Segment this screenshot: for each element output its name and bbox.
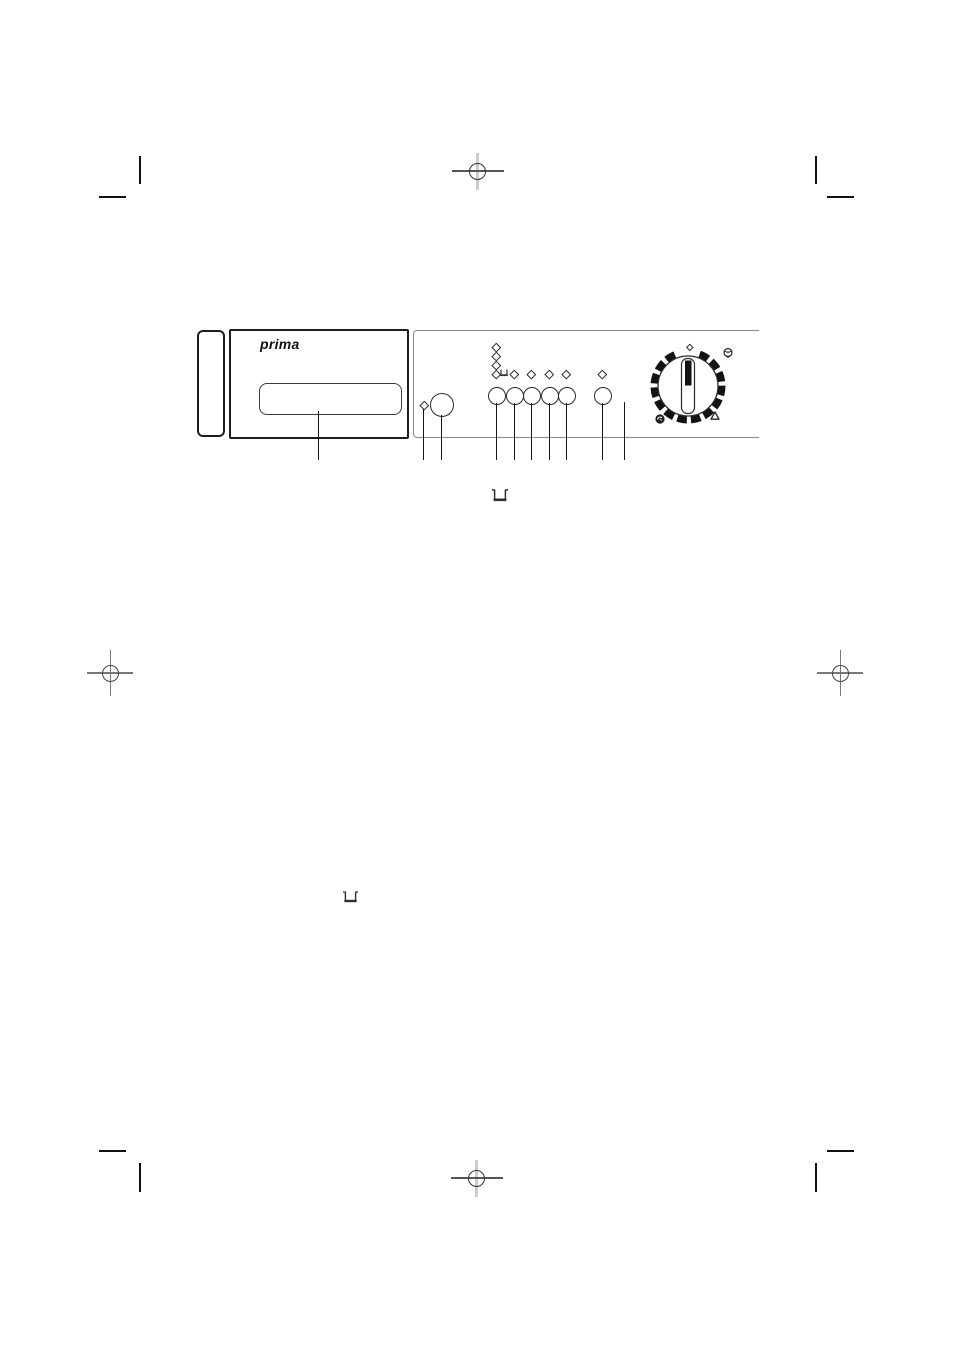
callout-line-button-2	[514, 403, 516, 460]
callout-line-button-1	[496, 403, 498, 460]
fascia-end-cap	[197, 330, 225, 437]
option-button-4	[541, 387, 559, 405]
crop-mark-bottom-left-vertical	[139, 1163, 141, 1192]
callout-line-start-button	[602, 403, 604, 460]
start-button	[594, 387, 612, 405]
option-button-2	[506, 387, 524, 405]
detergent-tub-icon	[491, 487, 509, 503]
crop-mark-bottom-right-horizontal	[827, 1150, 854, 1152]
crop-mark-bottom-left-horizontal	[99, 1150, 126, 1152]
callout-line-button-5	[566, 403, 568, 460]
crop-mark-top-left-vertical	[139, 156, 141, 184]
option-button-3	[523, 387, 541, 405]
option-button-5	[558, 387, 576, 405]
option-button-1	[488, 387, 506, 405]
callout-line-power-button	[441, 415, 443, 460]
crop-mark-top-left-horizontal	[99, 196, 126, 198]
detergent-tray-mini-icon	[499, 368, 509, 377]
detergent-drawer-handle	[259, 383, 402, 415]
wool-skein-icon	[722, 347, 734, 359]
crop-mark-top-right-vertical	[815, 156, 817, 184]
callout-line-button-4	[549, 403, 551, 460]
crop-mark-bottom-right-vertical	[815, 1163, 817, 1192]
callout-line-power-led	[423, 409, 425, 460]
dial-led	[687, 344, 693, 350]
callout-line-button-3	[531, 403, 533, 460]
power-button	[430, 393, 454, 417]
detergent-drawer-panel: prima	[229, 329, 409, 439]
callout-line-dial	[624, 402, 626, 460]
manual-page: prima	[0, 0, 954, 1349]
spin-icon	[654, 413, 666, 425]
detergent-tub-icon	[342, 889, 359, 904]
water-drop-icon	[709, 410, 721, 422]
brand-logo: prima	[260, 336, 300, 352]
dial-pointer	[685, 361, 692, 386]
crop-mark-top-right-horizontal	[827, 196, 854, 198]
callout-line-drawer	[318, 411, 320, 460]
